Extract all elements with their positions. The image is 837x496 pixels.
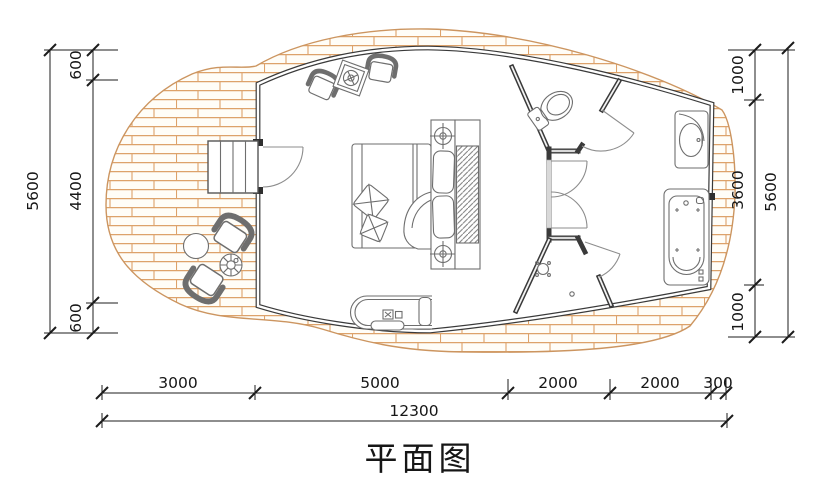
- dim-bottom-3000: 3000: [158, 374, 197, 392]
- wardrobe: [455, 120, 480, 269]
- bench-seat: [351, 296, 433, 330]
- dim-bottom-2000-b: 2000: [640, 374, 679, 392]
- washbasin: [675, 111, 708, 168]
- dim-bottom-300: 300: [703, 374, 733, 392]
- double-bed: [352, 144, 431, 249]
- bathtub: [664, 189, 709, 285]
- floor-plan-drawing: 600 4400 600 5600 1000 3600 1000 5600 30…: [0, 0, 837, 496]
- dim-left-4400: 4400: [67, 171, 85, 210]
- drawing-title: 平面图: [365, 439, 476, 478]
- dim-right-3600: 3600: [729, 170, 747, 209]
- floor-plan-page: 600 4400 600 5600 1000 3600 1000 5600 30…: [0, 0, 837, 496]
- dim-right-1000-top: 1000: [729, 55, 747, 94]
- outdoor-table: [184, 234, 209, 259]
- plant-stand: [220, 254, 242, 276]
- entry-steps: [208, 141, 258, 193]
- dim-bottom-2000-a: 2000: [538, 374, 577, 392]
- dim-right-total: 5600: [762, 172, 780, 211]
- dim-left-600-top: 600: [67, 50, 85, 80]
- dim-right-1000-bottom: 1000: [729, 292, 747, 331]
- dim-left-total: 5600: [24, 171, 42, 210]
- dim-bottom-5000: 5000: [360, 374, 399, 392]
- dim-bottom-total: 12300: [389, 402, 438, 420]
- headboard-console: [430, 120, 456, 269]
- dim-left-600-bottom: 600: [67, 303, 85, 333]
